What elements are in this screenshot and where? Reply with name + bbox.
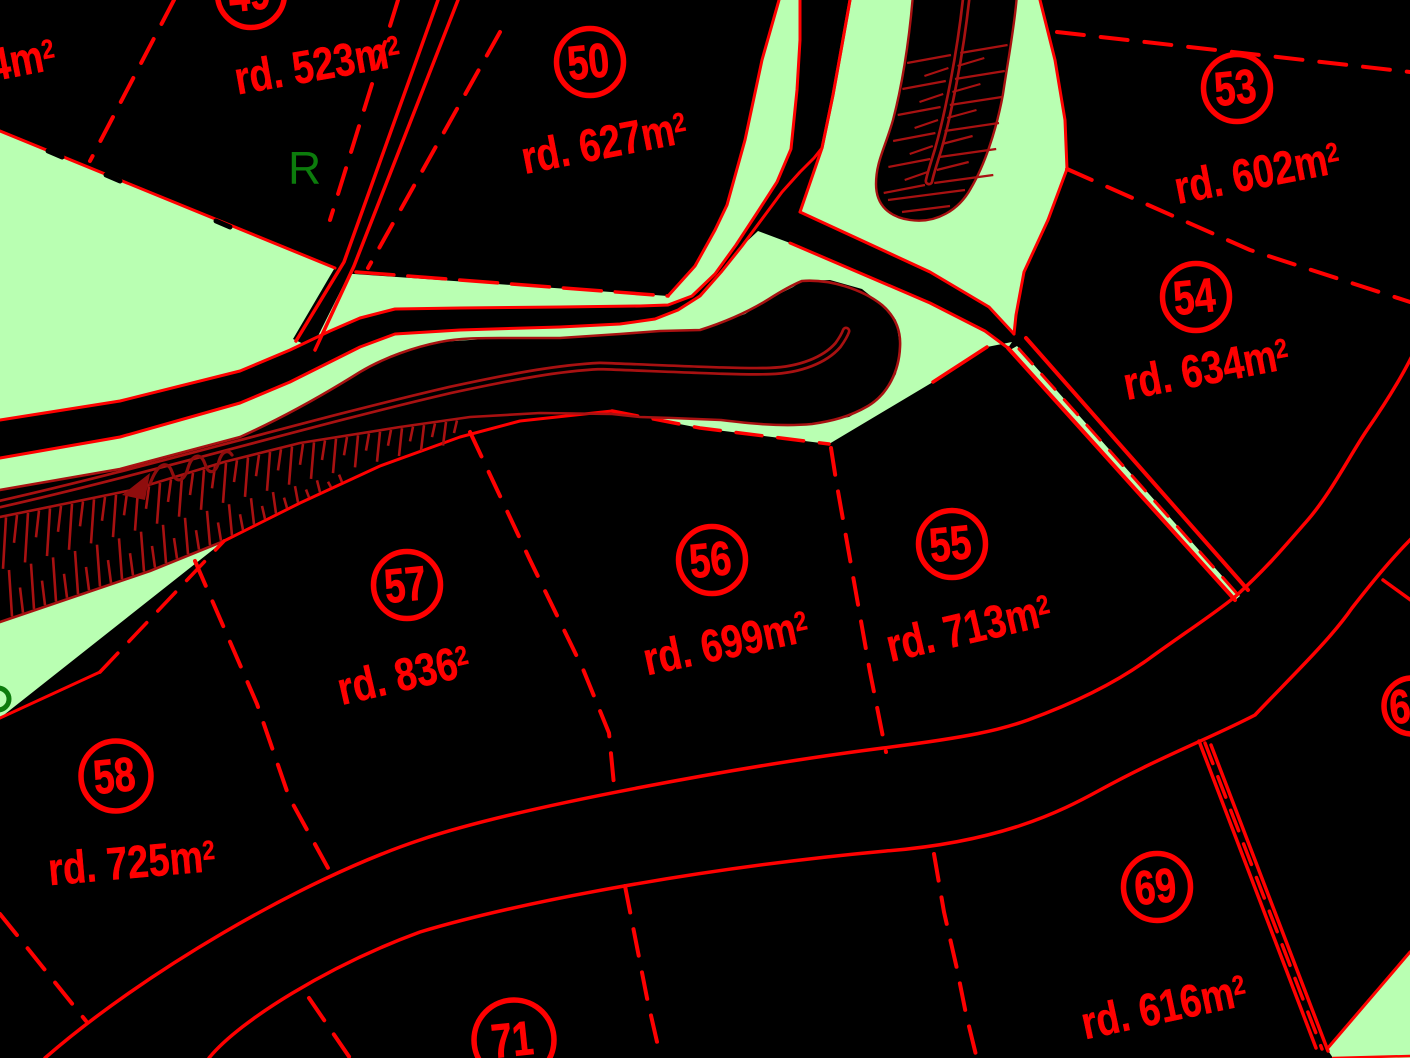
- svg-text:69: 69: [1132, 859, 1179, 917]
- svg-text:56: 56: [687, 532, 734, 590]
- svg-text:71: 71: [489, 1012, 536, 1058]
- svg-text:54: 54: [1171, 269, 1218, 327]
- svg-text:57: 57: [382, 557, 429, 615]
- svg-text:53: 53: [1212, 60, 1259, 118]
- svg-text:58: 58: [91, 748, 138, 806]
- svg-text:50: 50: [565, 34, 612, 92]
- svg-text:R: R: [288, 142, 321, 194]
- svg-text:55: 55: [927, 516, 974, 574]
